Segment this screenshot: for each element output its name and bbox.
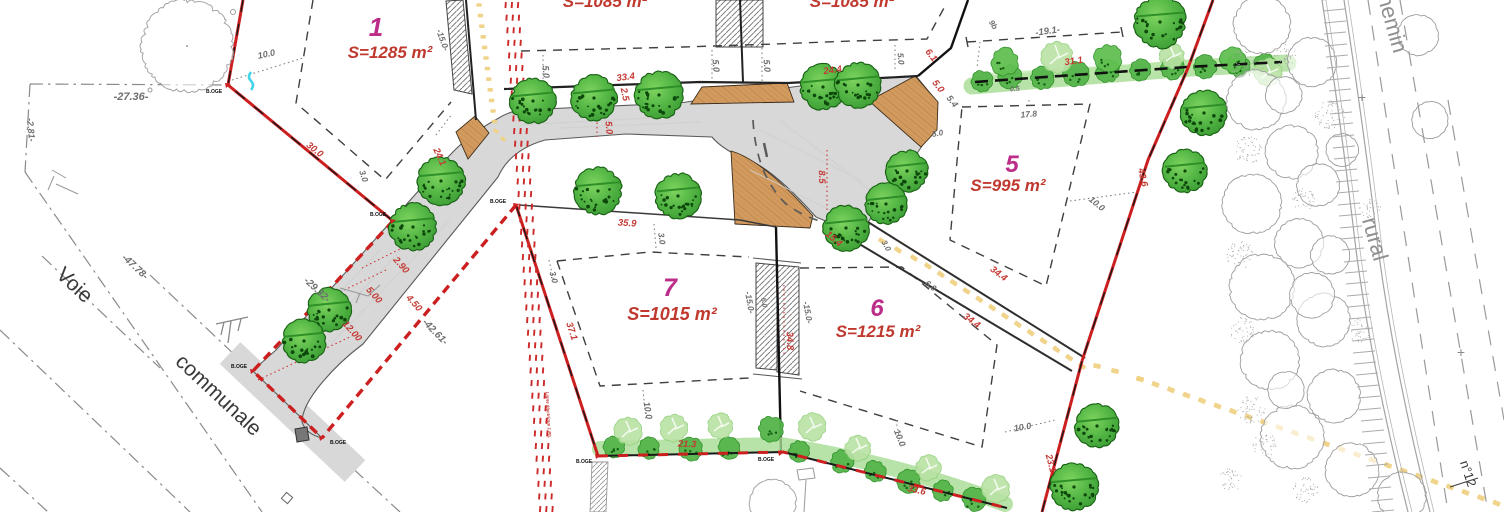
svg-text:8.5: 8.5	[816, 170, 827, 184]
svg-text:B.OGE: B.OGE	[758, 457, 775, 463]
svg-text:35.9: 35.9	[618, 218, 638, 230]
svg-text:S=1085 m²: S=1085 m²	[563, 0, 649, 11]
svg-text:33.4: 33.4	[616, 71, 636, 84]
svg-text:S=1085 m²: S=1085 m²	[810, 0, 896, 11]
svg-text:1: 1	[369, 12, 383, 42]
svg-text:5.0: 5.0	[895, 52, 906, 65]
svg-text:5.0: 5.0	[602, 121, 614, 136]
svg-text:S=1015 m²: S=1015 m²	[627, 304, 718, 324]
svg-text:-2.81-: -2.81-	[25, 118, 37, 142]
svg-text:21.3: 21.3	[677, 439, 698, 451]
svg-text:6: 6	[870, 295, 884, 322]
svg-text:5: 5	[1005, 151, 1019, 178]
svg-text:0.5: 0.5	[1010, 86, 1020, 94]
svg-text:+: +	[1358, 89, 1366, 105]
svg-text:5.0: 5.0	[761, 59, 772, 72]
svg-text:B.OGE: B.OGE	[370, 212, 387, 218]
svg-text:B.OGE: B.OGE	[231, 364, 248, 370]
svg-text:S=1285 m²: S=1285 m²	[348, 43, 434, 62]
svg-text:-27.36-: -27.36-	[114, 91, 149, 103]
svg-text:5.0: 5.0	[540, 65, 551, 78]
svg-text:B.OGE: B.OGE	[490, 199, 507, 205]
svg-text:B.OGE: B.OGE	[206, 89, 223, 95]
svg-text:B.OGE: B.OGE	[330, 440, 347, 446]
svg-text:17.8: 17.8	[1020, 108, 1038, 119]
svg-text:B.OGE: B.OGE	[576, 459, 593, 465]
svg-text:3.0: 3.0	[656, 232, 668, 245]
svg-text:5.0: 5.0	[710, 59, 721, 72]
svg-text:+: +	[1457, 344, 1465, 360]
svg-text:34.8: 34.8	[784, 331, 796, 351]
svg-text:S=1215 m²: S=1215 m²	[836, 322, 922, 341]
svg-text:S=995 m²: S=995 m²	[970, 176, 1046, 195]
svg-text:7: 7	[663, 274, 678, 302]
